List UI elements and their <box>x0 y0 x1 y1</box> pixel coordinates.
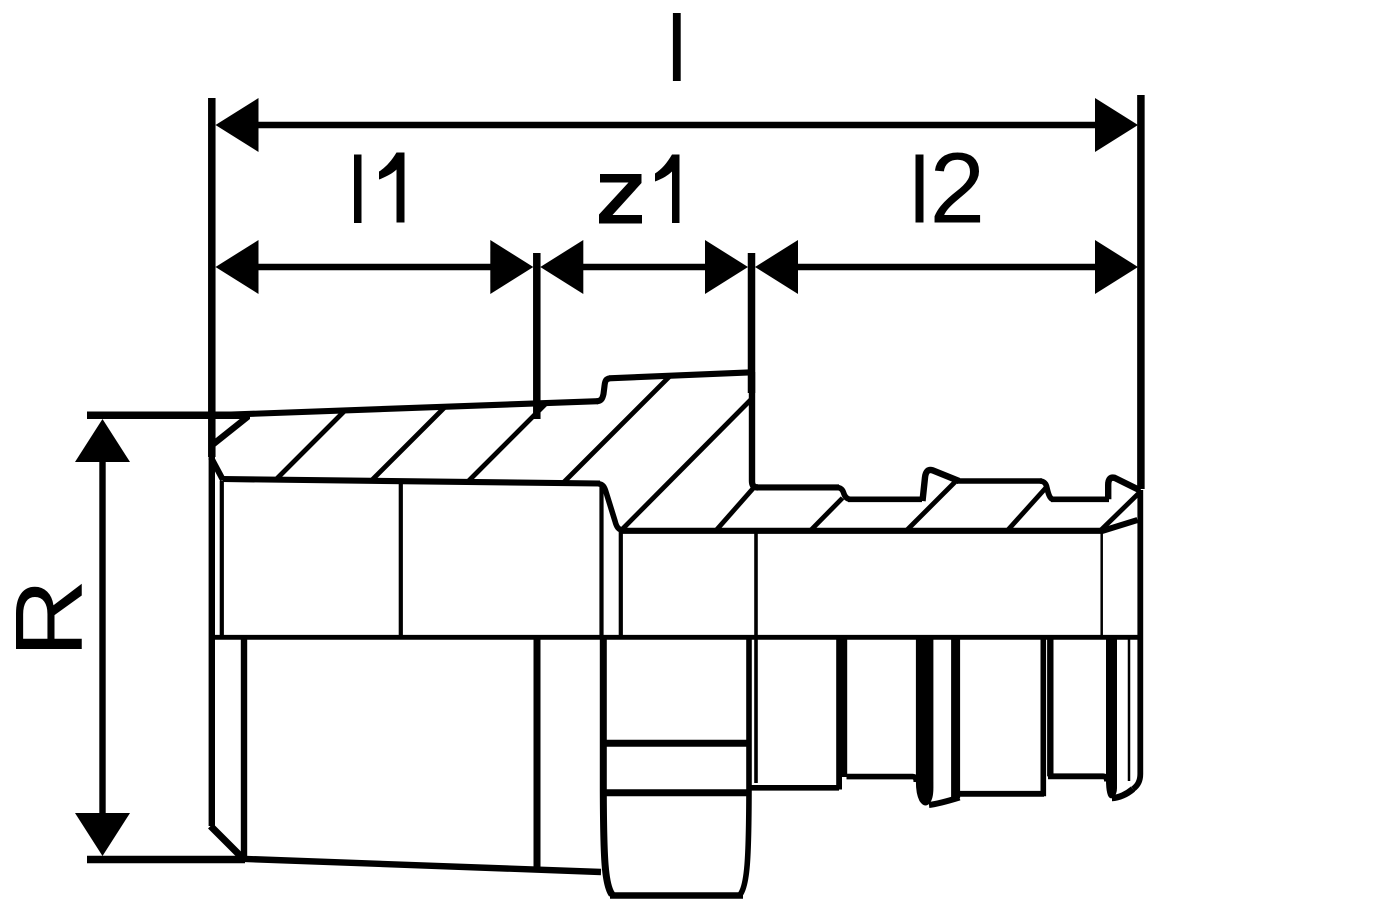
svg-text:2: 2 <box>930 133 986 245</box>
svg-text:R: R <box>0 579 102 658</box>
